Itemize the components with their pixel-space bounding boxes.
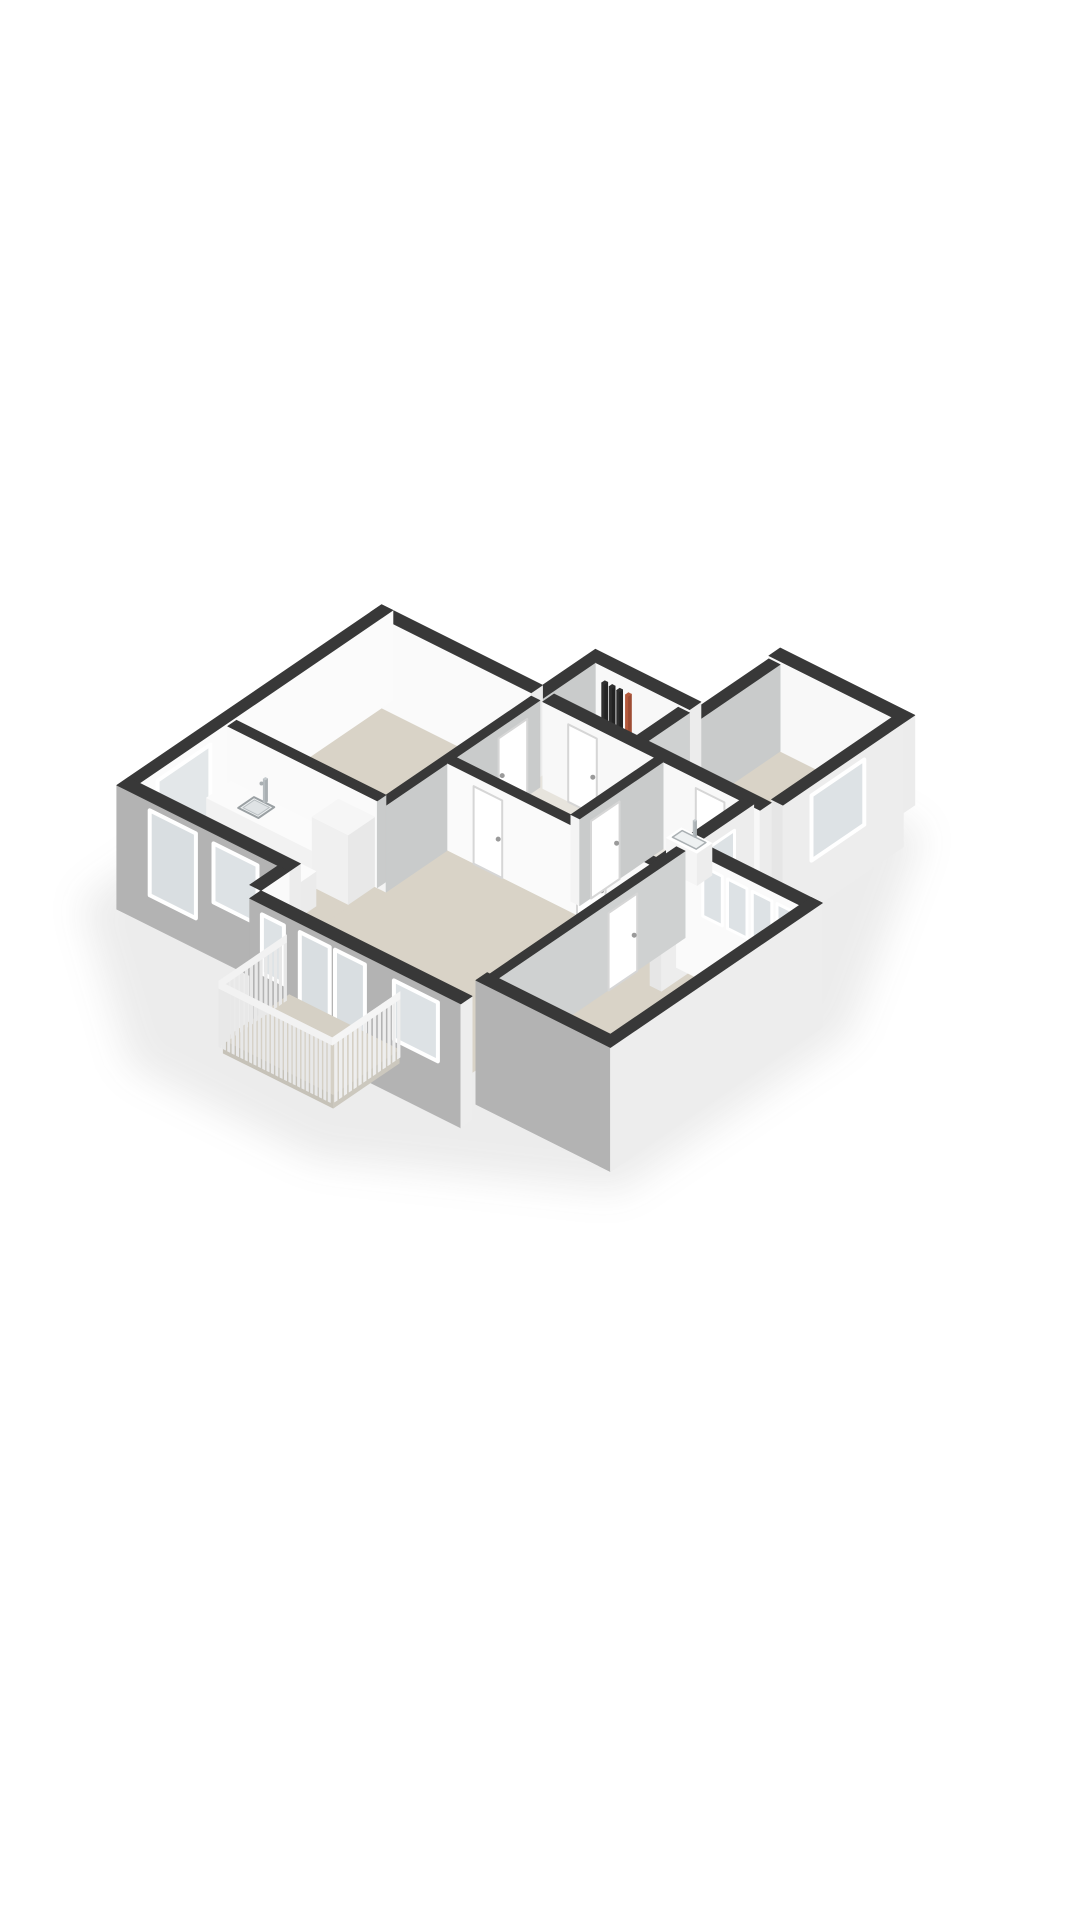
bathroom-faucet-east-face — [695, 820, 697, 837]
balcony-railing-east-slat — [373, 1016, 376, 1076]
balcony-railing-south-slat — [263, 1010, 265, 1070]
balcony-railing-east-slat — [368, 1019, 371, 1079]
balcony-railing-south-slat — [232, 995, 234, 1055]
balcony-railing-south-slat — [223, 991, 225, 1051]
balcony-railing-east-slat — [335, 1042, 338, 1102]
door-handle-bedroom-right — [632, 933, 637, 938]
balcony-railing-south-slat — [315, 1037, 317, 1096]
balcony-railing-east-slat — [364, 1022, 367, 1082]
balcony-railing-south-slat — [271, 1015, 273, 1075]
balcony-railing-south-slat — [249, 1004, 251, 1063]
balcony-railing-east-slat — [397, 999, 400, 1059]
wall-bathroom-west-south-face — [571, 815, 580, 906]
window-band-bedroom-right-pane-2 — [728, 879, 748, 938]
balcony-railing-south-slat — [302, 1030, 304, 1090]
balcony-railing-south-slat — [297, 1028, 299, 1088]
balcony-railing-east-slat — [344, 1035, 347, 1095]
door-handle-living-1 — [496, 837, 501, 842]
balcony-railing-east-slat — [349, 1032, 352, 1092]
balcony-railing-east-slat — [388, 1006, 391, 1066]
balcony-railing-south-slat — [254, 1006, 256, 1066]
balcony-railing-south-slat — [267, 1013, 269, 1072]
balcony-railing-south-slat — [311, 1034, 313, 1094]
wall-kitchen-north-east-face — [377, 795, 386, 888]
balcony-railing-south-slat — [328, 1043, 330, 1103]
floorplan-page — [0, 0, 1080, 1920]
door-handle-utility — [590, 775, 595, 780]
balcony-railing-south-slat — [228, 993, 230, 1053]
balcony-railing-south-slat — [258, 1008, 260, 1068]
balcony-railing-south-slat — [289, 1023, 291, 1082]
balcony-railing-east-slat — [383, 1009, 386, 1069]
wall-bedroom-right-east-south-face — [599, 1042, 610, 1172]
balcony-railing-south-slat — [280, 1019, 282, 1079]
balcony-railing-south-slat — [236, 997, 238, 1056]
balcony-railing-east-slat — [339, 1039, 342, 1099]
balcony-railing-east-slat — [359, 1025, 362, 1085]
balcony-railing-west-slat — [274, 949, 277, 1009]
balcony-railing-south-slat — [324, 1041, 326, 1101]
floorplan-3d-render — [0, 0, 1080, 1920]
kitchen-faucet-spout — [260, 782, 264, 786]
kitchen-faucet-east-face — [265, 779, 267, 803]
wall-study-north-east-face — [903, 715, 915, 813]
balcony-railing-south-slat — [219, 988, 221, 1048]
wall-living-south-east-face — [461, 996, 472, 1128]
balcony-railing-west-slat — [269, 952, 272, 1012]
balcony-railing-south-slat — [245, 1002, 247, 1062]
balcony-railing-south-slat — [284, 1021, 286, 1080]
balcony-railing-west-slat — [284, 942, 287, 1002]
balcony-railing-south-slat — [306, 1032, 308, 1092]
balcony-railing-east-slat — [393, 1002, 396, 1062]
door-handle-bathroom — [614, 841, 619, 846]
balcony-railing-east-slat — [378, 1012, 381, 1072]
balcony-railing-south-slat — [276, 1017, 278, 1077]
balcony-railing-east-slat — [354, 1029, 357, 1089]
kitchen-faucet-south-face — [263, 779, 265, 803]
door-living-1 — [474, 786, 503, 878]
balcony-railing-south-slat — [241, 999, 243, 1058]
balcony-railing-west-slat — [279, 946, 282, 1006]
door-handle-bedroom-left — [500, 773, 505, 778]
balcony-railing-south-slat — [319, 1039, 321, 1098]
balcony-railing-south-slat — [293, 1026, 295, 1085]
